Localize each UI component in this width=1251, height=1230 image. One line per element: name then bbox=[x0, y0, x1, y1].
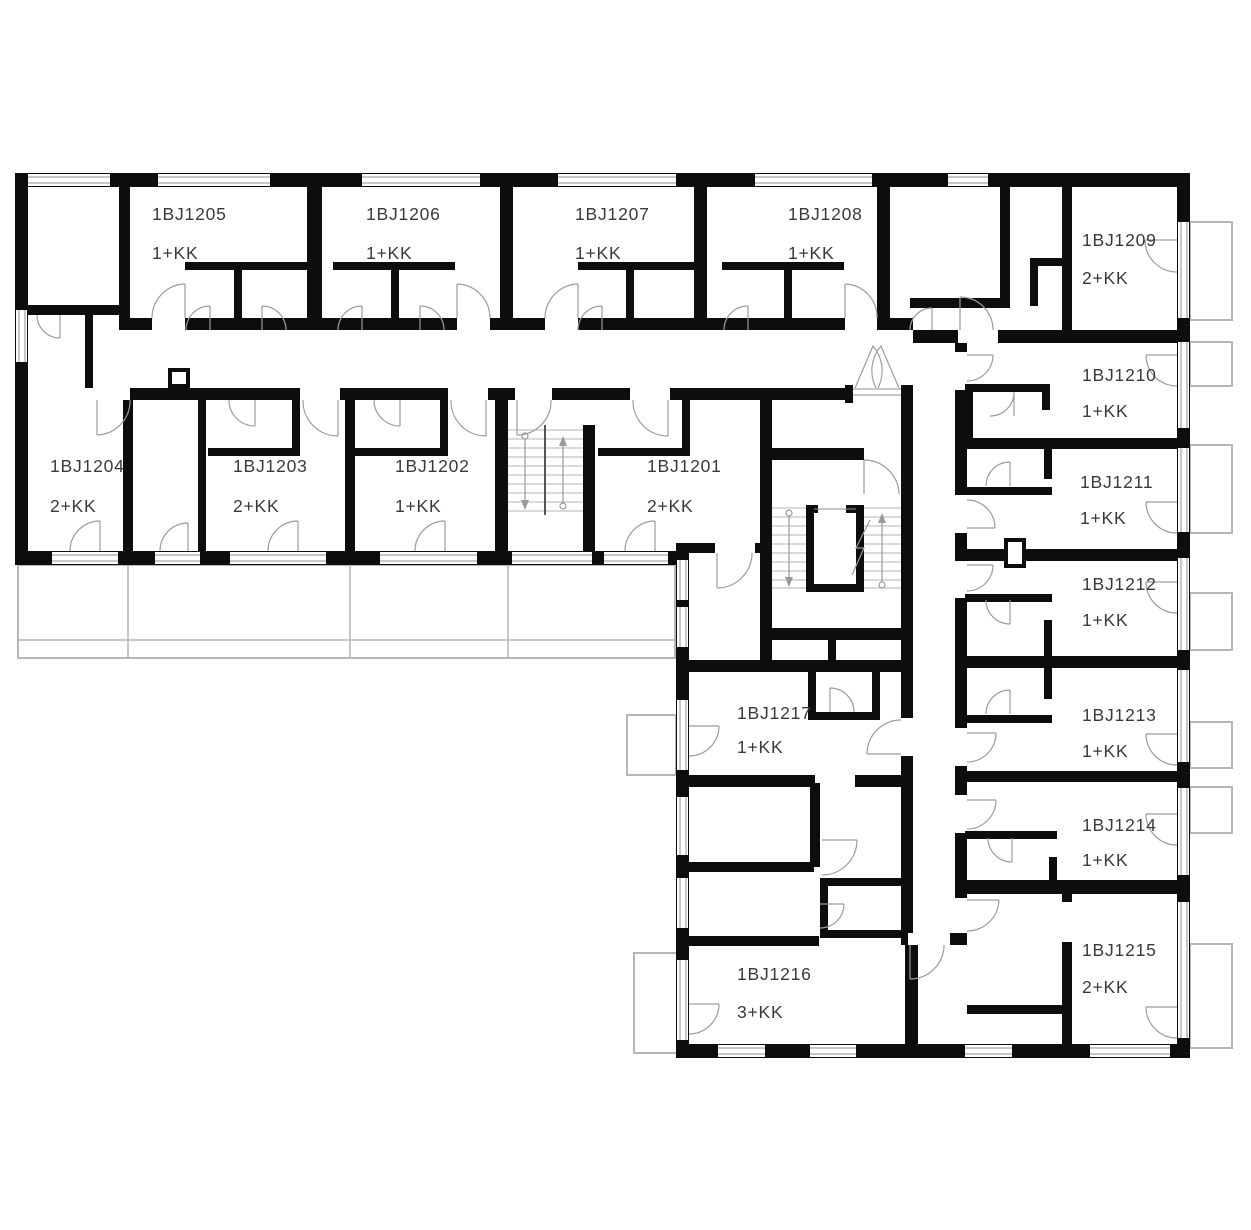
unit-label-1BJ1215: 1BJ1215 2+KK bbox=[1082, 940, 1157, 997]
svg-text:1BJ1216: 1BJ1216 bbox=[737, 964, 812, 984]
svg-text:1BJ1204: 1BJ1204 bbox=[50, 456, 125, 476]
svg-text:2+KK: 2+KK bbox=[1082, 268, 1129, 288]
svg-text:2+KK: 2+KK bbox=[233, 496, 280, 516]
unit-label-1BJ1201: 1BJ1201 2+KK bbox=[647, 456, 722, 516]
staircase-main bbox=[772, 508, 901, 588]
svg-text:1BJ1203: 1BJ1203 bbox=[233, 456, 308, 476]
svg-text:1+KK: 1+KK bbox=[1082, 610, 1129, 630]
svg-text:1+KK: 1+KK bbox=[1082, 401, 1129, 421]
svg-text:1BJ1210: 1BJ1210 bbox=[1082, 365, 1157, 385]
unit-label-1BJ1209: 1BJ1209 2+KK bbox=[1082, 230, 1157, 288]
svg-text:1BJ1207: 1BJ1207 bbox=[575, 204, 650, 224]
floor-plan-canvas: 1BJ1201 2+KK 1BJ1202 1+KK 1BJ1203 2+KK 1… bbox=[0, 0, 1251, 1230]
svg-text:1+KK: 1+KK bbox=[575, 243, 622, 263]
svg-text:1BJ1201: 1BJ1201 bbox=[647, 456, 722, 476]
unit-label-1BJ1207: 1BJ1207 1+KK bbox=[575, 204, 650, 263]
unit-label-1BJ1208: 1BJ1208 1+KK bbox=[788, 204, 863, 263]
unit-label-1BJ1204: 1BJ1204 2+KK bbox=[50, 456, 125, 516]
svg-text:2+KK: 2+KK bbox=[647, 496, 694, 516]
unit-label-1BJ1214: 1BJ1214 1+KK bbox=[1082, 815, 1157, 870]
unit-label-1BJ1205: 1BJ1205 1+KK bbox=[152, 204, 227, 263]
svg-text:1BJ1217: 1BJ1217 bbox=[737, 703, 812, 723]
svg-text:1+KK: 1+KK bbox=[1080, 508, 1127, 528]
svg-text:1BJ1214: 1BJ1214 bbox=[1082, 815, 1157, 835]
svg-text:1BJ1213: 1BJ1213 bbox=[1082, 705, 1157, 725]
svg-text:1+KK: 1+KK bbox=[395, 496, 442, 516]
svg-text:1BJ1208: 1BJ1208 bbox=[788, 204, 863, 224]
unit-label-1BJ1213: 1BJ1213 1+KK bbox=[1082, 705, 1157, 761]
svg-text:1+KK: 1+KK bbox=[152, 243, 199, 263]
svg-text:2+KK: 2+KK bbox=[1082, 977, 1129, 997]
svg-text:1BJ1215: 1BJ1215 bbox=[1082, 940, 1157, 960]
unit-label-1BJ1211: 1BJ1211 1+KK bbox=[1080, 472, 1153, 528]
floor-plan-drawing: 1BJ1201 2+KK 1BJ1202 1+KK 1BJ1203 2+KK 1… bbox=[0, 0, 1251, 1230]
unit-label-1BJ1203: 1BJ1203 2+KK bbox=[233, 456, 308, 516]
svg-text:2+KK: 2+KK bbox=[50, 496, 97, 516]
unit-label-1BJ1202: 1BJ1202 1+KK bbox=[395, 456, 470, 516]
svg-text:1+KK: 1+KK bbox=[737, 737, 784, 757]
svg-text:1BJ1212: 1BJ1212 bbox=[1082, 574, 1157, 594]
svg-text:1BJ1206: 1BJ1206 bbox=[366, 204, 441, 224]
svg-text:1BJ1211: 1BJ1211 bbox=[1080, 472, 1153, 492]
staircase-secondary bbox=[508, 425, 583, 515]
svg-text:1BJ1202: 1BJ1202 bbox=[395, 456, 470, 476]
svg-text:1BJ1205: 1BJ1205 bbox=[152, 204, 227, 224]
svg-text:1+KK: 1+KK bbox=[1082, 741, 1129, 761]
unit-label-1BJ1217: 1BJ1217 1+KK bbox=[737, 703, 812, 757]
svg-text:1+KK: 1+KK bbox=[788, 243, 835, 263]
unit-label-1BJ1206: 1BJ1206 1+KK bbox=[366, 204, 441, 263]
unit-label-1BJ1216: 1BJ1216 3+KK bbox=[737, 964, 812, 1022]
svg-text:1BJ1209: 1BJ1209 bbox=[1082, 230, 1157, 250]
unit-label-1BJ1212: 1BJ1212 1+KK bbox=[1082, 574, 1157, 630]
svg-text:3+KK: 3+KK bbox=[737, 1002, 784, 1022]
unit-label-1BJ1210: 1BJ1210 1+KK bbox=[1082, 365, 1157, 421]
svg-text:1+KK: 1+KK bbox=[366, 243, 413, 263]
svg-text:1+KK: 1+KK bbox=[1082, 850, 1129, 870]
